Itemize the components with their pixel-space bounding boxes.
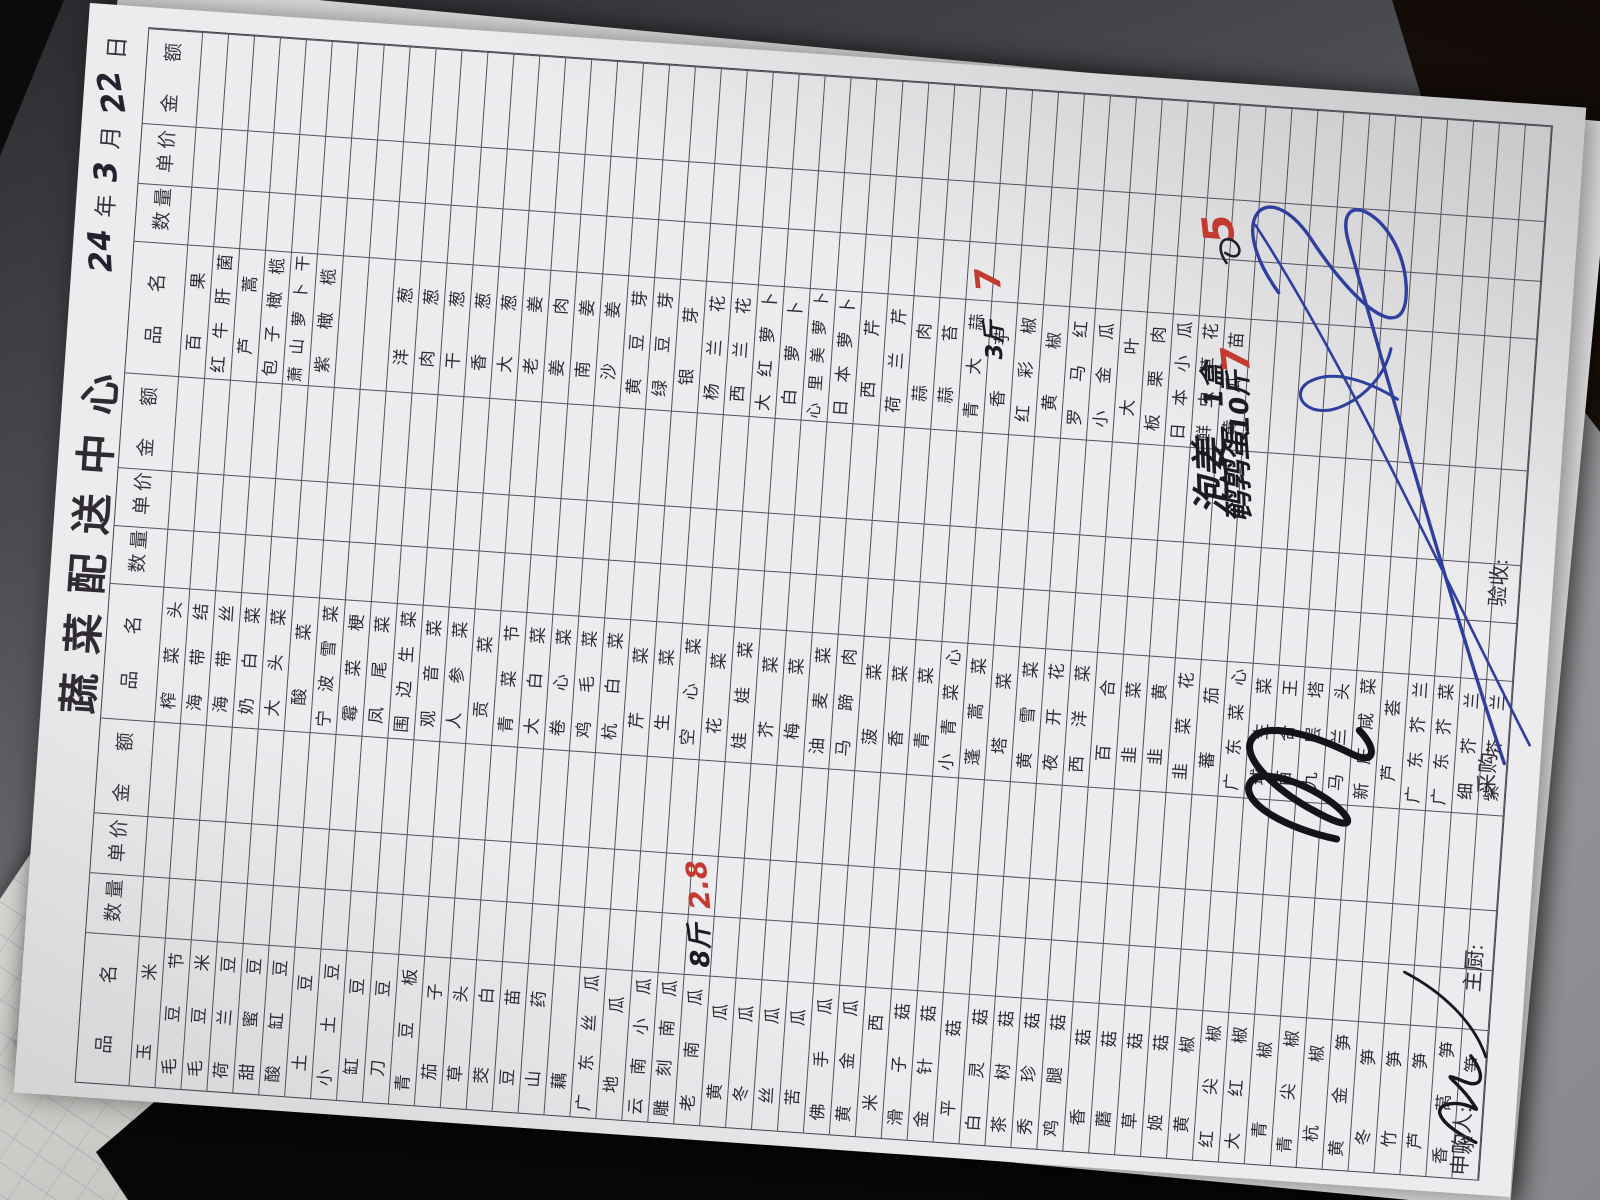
empty-price-cell xyxy=(869,520,899,580)
empty-qty-cell xyxy=(837,232,867,292)
empty-price-cell xyxy=(220,475,250,535)
empty-qty-cell xyxy=(502,552,532,612)
month-label: 月 xyxy=(91,125,127,150)
empty-qty-cell xyxy=(889,236,919,296)
empty-qty-cell xyxy=(1407,272,1437,332)
empty-qty-cell xyxy=(1381,270,1411,330)
column-header-qty: 数 量 xyxy=(86,872,144,936)
empty-price-cell xyxy=(324,482,354,542)
empty-price-cell xyxy=(1336,553,1366,613)
empty-qty-cell xyxy=(579,558,609,618)
handwritten-day: 22 xyxy=(90,68,133,117)
empty-price-cell xyxy=(350,484,380,544)
empty-qty-cell xyxy=(1280,607,1310,667)
empty-price-cell xyxy=(506,494,536,554)
empty-qty-cell xyxy=(1409,616,1439,676)
empty-qty-cell xyxy=(1278,263,1308,323)
empty-qty-cell xyxy=(500,208,530,268)
empty-price-cell xyxy=(298,480,328,540)
empty-price-cell xyxy=(1232,545,1262,605)
empty-price-cell xyxy=(1102,536,1132,596)
empty-amount-cell xyxy=(1519,124,1552,221)
empty-price-cell xyxy=(454,491,484,551)
empty-qty-cell xyxy=(1304,265,1334,325)
empty-qty-cell xyxy=(320,540,350,600)
empty-qty-cell xyxy=(1383,614,1413,674)
column-header-qty: 数 量 xyxy=(134,183,192,245)
empty-qty-cell xyxy=(605,560,635,620)
empty-qty-cell xyxy=(992,243,1022,303)
empty-price-cell xyxy=(480,493,510,553)
empty-qty-cell xyxy=(525,210,555,270)
empty-qty-cell xyxy=(891,580,921,640)
empty-price-cell xyxy=(609,502,639,562)
empty-price-cell xyxy=(713,509,743,569)
empty-qty-cell xyxy=(527,554,557,614)
empty-price-cell xyxy=(817,516,847,576)
empty-price-cell xyxy=(843,518,873,578)
empty-price-cell xyxy=(1284,549,1314,609)
column-header-name: 品 名 xyxy=(101,583,164,721)
empty-price-cell xyxy=(428,489,458,549)
handwritten-year: 24 xyxy=(82,228,120,273)
empty-price-cell xyxy=(1128,538,1158,598)
empty-qty-cell xyxy=(839,576,869,636)
empty-price-cell xyxy=(687,507,717,567)
empty-qty-cell xyxy=(631,561,661,621)
empty-price-cell xyxy=(532,496,562,556)
empty-qty-cell xyxy=(188,187,218,247)
empty-price-cell xyxy=(739,511,769,571)
empty-price-cell xyxy=(1206,543,1236,603)
empty-qty-cell xyxy=(1461,619,1491,679)
empty-qty-cell xyxy=(216,532,246,592)
empty-qty-cell xyxy=(735,569,765,629)
empty-qty-cell xyxy=(344,197,374,257)
empty-qty-cell xyxy=(1511,279,1541,339)
empty-qty-cell xyxy=(917,581,947,641)
empty-qty-cell xyxy=(1435,618,1465,678)
empty-qty-cell xyxy=(1096,250,1126,310)
column-header-amount: 金 额 xyxy=(143,28,203,127)
empty-price-cell xyxy=(194,473,224,533)
empty-price-cell xyxy=(402,487,432,547)
column-header-price: 单 价 xyxy=(115,467,173,529)
empty-qty-cell xyxy=(450,549,480,609)
empty-qty-cell xyxy=(1228,603,1258,663)
empty-qty-cell xyxy=(1357,612,1387,672)
empty-qty-cell xyxy=(1226,259,1256,319)
chef-label: 主厨: xyxy=(1456,943,1489,993)
empty-price-cell xyxy=(583,500,613,560)
empty-price-cell xyxy=(765,513,795,573)
empty-qty-cell xyxy=(370,199,400,259)
inspector-label: 验收: xyxy=(1481,558,1514,608)
empty-qty-cell xyxy=(966,241,996,301)
handwritten-month: 3 xyxy=(88,160,125,183)
empty-qty-cell xyxy=(476,551,506,611)
empty-qty-cell xyxy=(915,237,945,297)
empty-qty-cell xyxy=(761,570,791,630)
empty-price-cell xyxy=(557,498,587,558)
empty-qty-cell xyxy=(707,223,737,283)
empty-qty-cell xyxy=(372,543,402,603)
empty-price-cell xyxy=(921,524,951,584)
empty-qty-cell xyxy=(1046,590,1076,650)
empty-qty-cell xyxy=(1200,257,1230,317)
empty-price-cell xyxy=(1050,533,1080,593)
empty-qty-cell xyxy=(1174,256,1204,316)
empty-qty-cell xyxy=(214,188,244,248)
empty-qty-cell xyxy=(1485,277,1515,337)
empty-price-cell xyxy=(1258,547,1288,607)
applicant-label: 申购人: xyxy=(1444,1106,1479,1177)
empty-qty-cell xyxy=(318,196,348,256)
empty-qty-cell xyxy=(294,538,324,598)
empty-price-cell xyxy=(168,471,198,531)
empty-qty-cell xyxy=(1124,596,1154,656)
empty-qty-cell xyxy=(346,541,376,601)
empty-price-cell xyxy=(1154,540,1184,600)
day-label: 日 xyxy=(97,35,133,60)
empty-price-cell xyxy=(947,525,977,585)
empty-qty-cell xyxy=(709,567,739,627)
empty-qty-cell xyxy=(268,536,298,596)
empty-qty-cell xyxy=(1459,275,1489,335)
empty-qty-cell xyxy=(474,207,504,267)
buyer-label: 采购: xyxy=(1470,745,1503,795)
empty-qty-cell xyxy=(1254,605,1284,665)
empty-price-cell xyxy=(1024,531,1054,591)
empty-qty-cell xyxy=(1330,266,1360,326)
empty-qty-cell xyxy=(994,587,1024,647)
empty-qty-cell xyxy=(1072,592,1102,652)
empty-qty-cell xyxy=(448,205,478,265)
empty-qty-cell xyxy=(863,234,893,294)
empty-qty-cell xyxy=(577,214,607,274)
empty-price-cell xyxy=(1439,560,1469,620)
empty-price-cell xyxy=(1310,551,1340,611)
empty-qty-cell xyxy=(865,578,895,638)
empty-price-cell xyxy=(376,485,406,545)
order-table: 品 名数 量单 价金 额品 名数 量单 价金 额品 名数 量单 价金 额玉米榨菜… xyxy=(75,27,1553,1181)
empty-qty-cell xyxy=(1176,600,1206,660)
empty-price-cell xyxy=(1362,554,1392,614)
empty-qty-cell xyxy=(655,219,685,279)
empty-qty-cell xyxy=(1487,621,1517,681)
empty-qty-cell xyxy=(1098,594,1128,654)
empty-amount-cell xyxy=(1471,814,1504,911)
empty-qty-cell xyxy=(1433,274,1463,334)
empty-price-cell xyxy=(1387,556,1417,616)
empty-qty-cell xyxy=(968,585,998,645)
empty-qty-cell xyxy=(787,572,817,632)
empty-qty-cell xyxy=(942,583,972,643)
empty-qty-cell xyxy=(759,227,789,287)
empty-qty-cell xyxy=(292,194,322,254)
order-form-paper: 蔬菜配送中心 24 年 3 月 22 日 品 名数 量单 价金 额品 名数 量单… xyxy=(14,3,1587,1197)
empty-price-cell xyxy=(1413,558,1443,618)
empty-qty-cell xyxy=(733,225,763,285)
photo-of-order-form: 〜⌒〜 〰︲〰 蔬菜配送中心 24 年 3 月 22 日 品 名数 量单 价金 … xyxy=(0,0,1600,1200)
date-line: 24 年 3 月 22 日 xyxy=(81,10,135,274)
column-header-qty: 数 量 xyxy=(111,525,169,587)
empty-price-cell xyxy=(661,505,691,565)
empty-qty-cell xyxy=(657,563,687,623)
empty-qty-cell xyxy=(940,239,970,299)
empty-price-cell xyxy=(1180,542,1210,602)
empty-price-cell xyxy=(998,529,1028,589)
empty-qty-cell xyxy=(240,190,270,250)
empty-qty-cell xyxy=(1122,252,1152,312)
empty-price-cell xyxy=(635,504,665,564)
empty-qty-cell xyxy=(785,228,815,288)
empty-qty-cell xyxy=(1150,598,1180,658)
empty-qty-cell xyxy=(1020,589,1050,649)
empty-qty-cell xyxy=(422,203,452,263)
empty-price-cell xyxy=(272,478,302,538)
empty-qty-cell xyxy=(551,212,581,272)
empty-price-cell xyxy=(791,514,821,574)
empty-qty-cell xyxy=(553,556,583,616)
column-header-price: 单 价 xyxy=(138,123,196,187)
column-header-name: 品 名 xyxy=(125,241,188,376)
empty-qty-cell xyxy=(266,192,296,252)
column-header-amount: 金 额 xyxy=(119,372,179,471)
empty-qty-cell xyxy=(1044,246,1074,306)
column-header-price: 单 价 xyxy=(90,812,148,876)
empty-qty-cell xyxy=(683,565,713,625)
empty-qty-cell xyxy=(190,531,220,591)
empty-qty-cell xyxy=(813,574,843,634)
empty-price-cell xyxy=(246,476,276,536)
empty-qty-cell xyxy=(1202,601,1232,661)
empty-amount-cell xyxy=(1495,469,1528,566)
empty-qty-cell xyxy=(1148,254,1178,314)
empty-price-cell xyxy=(1076,534,1106,594)
empty-qty-cell xyxy=(1252,261,1282,321)
empty-qty-cell xyxy=(603,216,633,276)
empty-qty-cell xyxy=(681,221,711,281)
empty-qty-cell xyxy=(396,201,426,261)
empty-qty-cell xyxy=(424,547,454,607)
empty-qty-cell xyxy=(1332,610,1362,670)
year-label: 年 xyxy=(86,193,122,218)
empty-qty-cell xyxy=(1070,248,1100,308)
empty-qty-cell xyxy=(1018,245,1048,305)
column-header-amount: 金 额 xyxy=(94,718,154,817)
empty-qty-cell xyxy=(398,545,428,605)
empty-price-cell xyxy=(895,522,925,582)
empty-qty-cell xyxy=(1306,609,1336,669)
empty-qty-cell xyxy=(629,217,659,277)
empty-price-cell xyxy=(1515,219,1545,281)
empty-qty-cell xyxy=(1355,268,1385,328)
empty-price-cell xyxy=(972,527,1002,587)
empty-qty-cell xyxy=(164,529,194,589)
empty-qty-cell xyxy=(242,534,272,594)
empty-qty-cell xyxy=(811,230,841,290)
